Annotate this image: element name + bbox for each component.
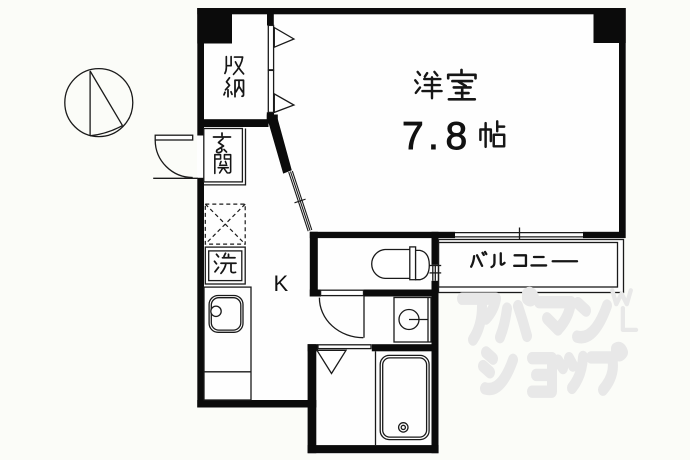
svg-text:K: K (274, 271, 289, 296)
svg-text:7: 7 (402, 115, 424, 158)
svg-text:.: . (428, 115, 439, 158)
svg-text:8: 8 (446, 115, 468, 158)
